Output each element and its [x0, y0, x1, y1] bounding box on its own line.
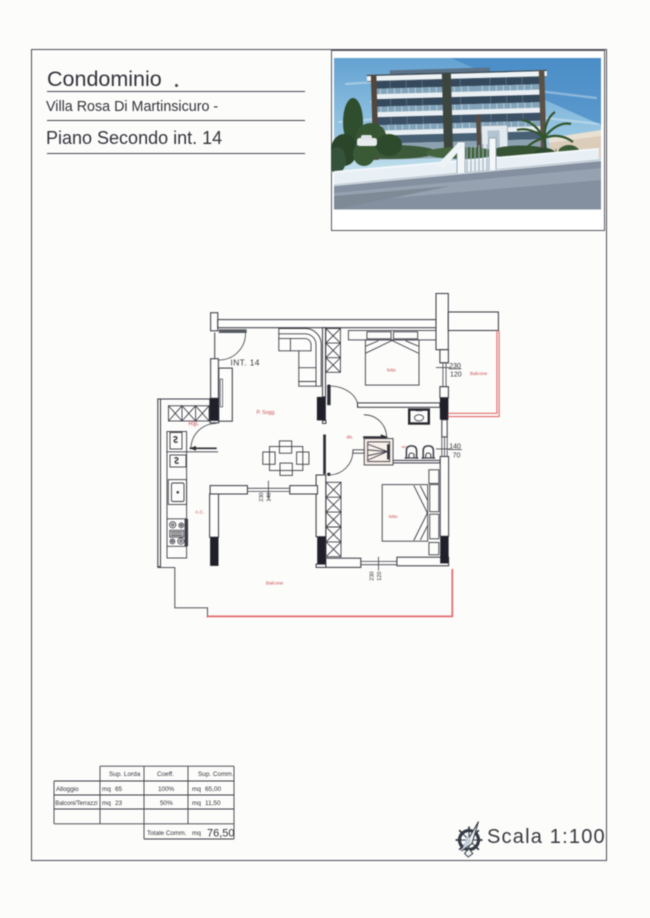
svg-text:mq: mq — [102, 800, 111, 807]
svg-text:230: 230 — [369, 571, 375, 580]
svg-text:50%: 50% — [160, 800, 173, 807]
svg-text:letto: letto — [387, 367, 396, 372]
svg-text:letto: letto — [389, 514, 398, 519]
svg-text:mq: mq — [192, 786, 201, 793]
svg-text:65: 65 — [115, 786, 123, 793]
svg-text:INT. 14: INT. 14 — [231, 358, 260, 368]
svg-text:Sup. Lorda: Sup. Lorda — [109, 771, 141, 778]
svg-text:Balcone: Balcone — [266, 580, 284, 586]
svg-text:Rip.: Rip. — [189, 421, 200, 427]
svg-text:Sup. Comm.: Sup. Comm. — [198, 771, 234, 778]
svg-text:Alloggio: Alloggio — [56, 786, 79, 793]
svg-text:140: 140 — [449, 444, 461, 451]
svg-text:100%: 100% — [158, 786, 175, 793]
svg-text:Balcone: Balcone — [470, 371, 488, 377]
svg-text:140: 140 — [267, 492, 273, 501]
svg-text:mq: mq — [192, 830, 201, 837]
svg-text:mq: mq — [192, 800, 201, 807]
svg-text:A.C.: A.C. — [195, 510, 204, 515]
svg-text:11,50: 11,50 — [205, 800, 221, 807]
svg-text:70: 70 — [453, 452, 461, 459]
svg-text:Balconi/Terrazzi: Balconi/Terrazzi — [55, 801, 97, 807]
svg-text:65,00: 65,00 — [205, 786, 221, 793]
svg-text:23: 23 — [115, 800, 123, 807]
svg-text:wc: wc — [402, 444, 407, 449]
svg-text:Totale Comm.: Totale Comm. — [147, 830, 187, 837]
svg-text:mq: mq — [102, 786, 111, 793]
svg-text:120: 120 — [450, 371, 462, 378]
svg-text:230: 230 — [259, 492, 265, 501]
svg-text:120: 120 — [377, 572, 383, 581]
svg-text:dis.: dis. — [347, 435, 354, 440]
svg-text:P. Sogg.: P. Sogg. — [257, 410, 276, 416]
svg-text:230: 230 — [449, 363, 461, 370]
svg-text:Coeff.: Coeff. — [157, 771, 174, 778]
svg-text:76,50: 76,50 — [207, 828, 235, 840]
